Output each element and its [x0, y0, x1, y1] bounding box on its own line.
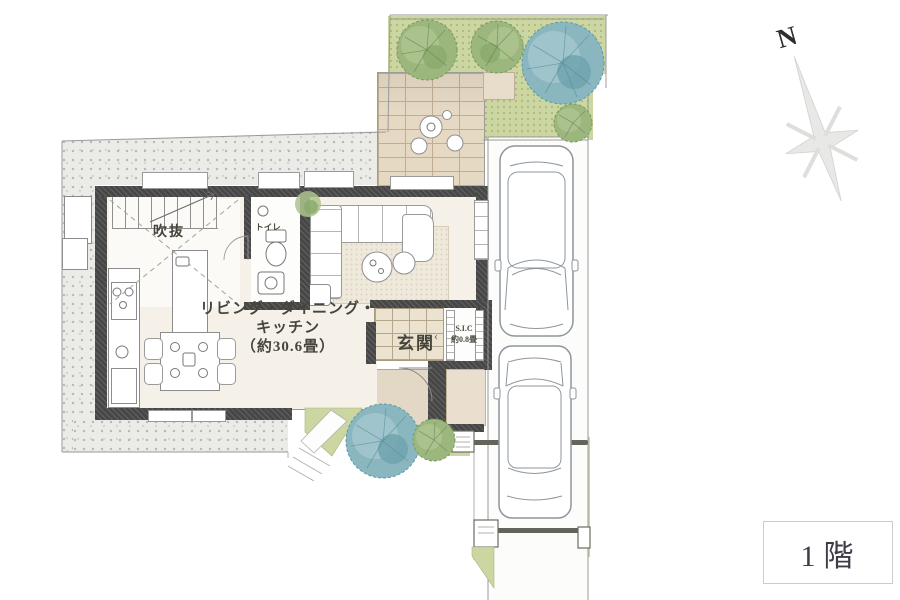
- toilet-room: [251, 197, 300, 302]
- window-south2: [192, 410, 226, 422]
- ac-unit: [64, 196, 92, 244]
- wall-left: [95, 197, 107, 420]
- ldk-label-line2: キッチン: [197, 319, 379, 338]
- toilet-label: トイレ: [249, 222, 287, 232]
- approach-walkway: [288, 408, 362, 481]
- ldk-label-line3: （約30.6畳）: [197, 338, 379, 357]
- ldk-label-line1: リビング・ダイニング・: [197, 300, 379, 319]
- floor-plan-canvas: リビング・ダイニング・ キッチン （約30.6畳） 玄関 S.I.C 約0.8畳…: [0, 0, 900, 600]
- dining-chair: [144, 338, 163, 360]
- window-living-north: [304, 171, 354, 188]
- window-north: [142, 172, 208, 189]
- kitchen-cabinet: [111, 368, 137, 404]
- wall-genkan-top: [370, 300, 492, 308]
- compass-n-label: N: [768, 18, 805, 56]
- dining-chair: [144, 363, 163, 385]
- patio-pad: [483, 72, 515, 100]
- sic-arrow: ‹: [431, 328, 441, 344]
- sofa-chaise-section: [402, 214, 434, 262]
- meter-box: [62, 238, 88, 270]
- porch: [376, 369, 430, 426]
- garden-patio: [377, 72, 485, 187]
- kitchen-stove: [111, 282, 137, 320]
- compass-star: [758, 45, 877, 213]
- setback-band-bottom: [73, 420, 288, 452]
- sic-label: S.I.C: [442, 324, 486, 334]
- floor-badge: 1階: [763, 521, 893, 584]
- sic-size-label: 約0.8畳: [440, 335, 488, 345]
- window-toilet: [258, 172, 300, 189]
- floor-badge-text: 1階: [801, 531, 862, 575]
- ldk-room-label: リビング・ダイニング・ キッチン （約30.6畳）: [197, 300, 379, 357]
- window-living-north2: [390, 176, 454, 190]
- window-living-east: [474, 200, 489, 260]
- wall-porch-bottom: [428, 424, 484, 432]
- driveway: [488, 137, 588, 600]
- porch-outer-step: [446, 369, 486, 426]
- garden-lawn-north: [388, 16, 606, 74]
- wall-toilet-right: [300, 197, 310, 310]
- window-south1: [148, 410, 192, 422]
- dining-chair: [217, 363, 236, 385]
- wall-porch-east: [428, 361, 446, 432]
- atrium-label: 吹抜: [147, 221, 191, 241]
